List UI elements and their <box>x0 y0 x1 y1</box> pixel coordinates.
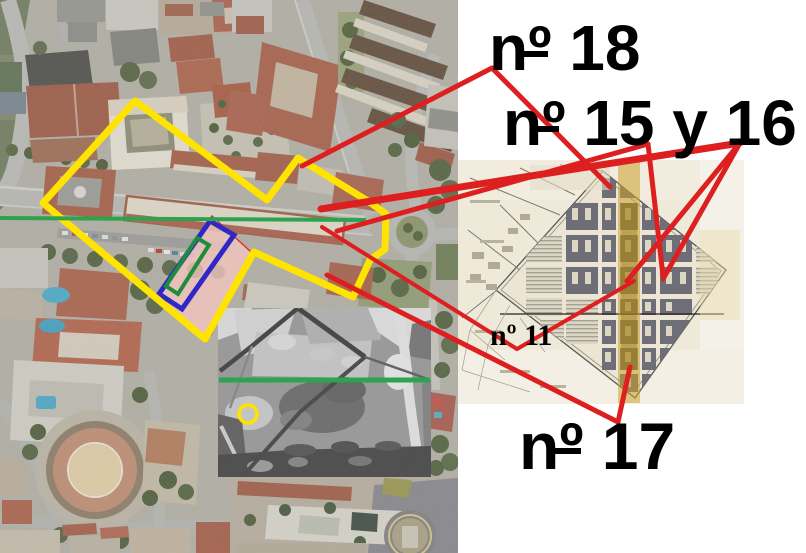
svg-text:nº 11: nº 11 <box>490 319 552 352</box>
svg-text:nº 15 y 16: nº 15 y 16 <box>503 87 797 159</box>
svg-text:nº 17: nº 17 <box>519 409 675 483</box>
svg-text:nº 18: nº 18 <box>489 12 640 84</box>
